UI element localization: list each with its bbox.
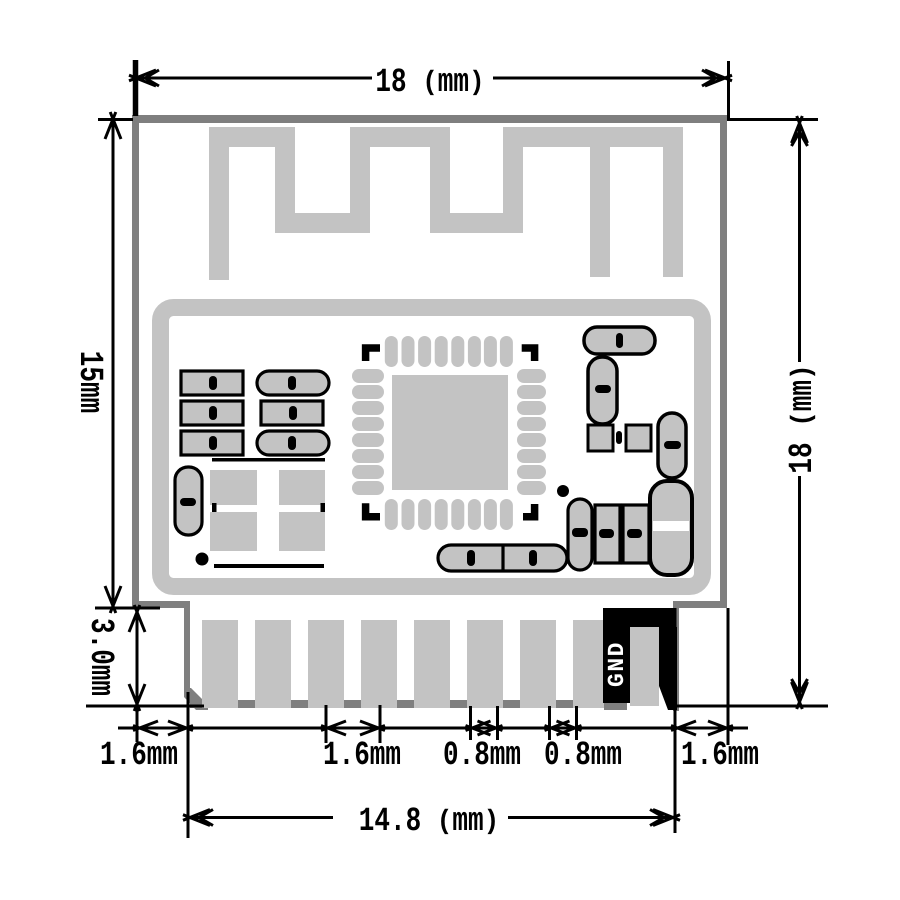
- svg-text:0.8mm: 0.8mm: [443, 736, 521, 775]
- svg-text:): ): [786, 364, 818, 380]
- svg-text:15mm: 15mm: [71, 351, 110, 413]
- svg-text:mm: mm: [783, 380, 822, 411]
- svg-text:(: (: [422, 66, 438, 98]
- svg-text:mm: mm: [438, 63, 469, 102]
- svg-text:(: (: [437, 805, 453, 837]
- svg-text:(: (: [786, 411, 818, 427]
- svg-text:GND: GND: [604, 641, 630, 687]
- svg-text:18: 18: [375, 63, 406, 102]
- svg-text:1.6mm: 1.6mm: [681, 736, 759, 775]
- svg-text:1.6mm: 1.6mm: [323, 736, 401, 775]
- svg-text:): ): [469, 66, 485, 98]
- svg-text:): ): [484, 805, 500, 837]
- svg-text:mm: mm: [452, 802, 483, 841]
- svg-text:1.6mm: 1.6mm: [100, 736, 178, 775]
- svg-text:3.0mm: 3.0mm: [82, 618, 121, 696]
- svg-text:14.8: 14.8: [359, 802, 421, 841]
- svg-text:18: 18: [783, 442, 822, 473]
- svg-text:0.8mm: 0.8mm: [544, 736, 622, 775]
